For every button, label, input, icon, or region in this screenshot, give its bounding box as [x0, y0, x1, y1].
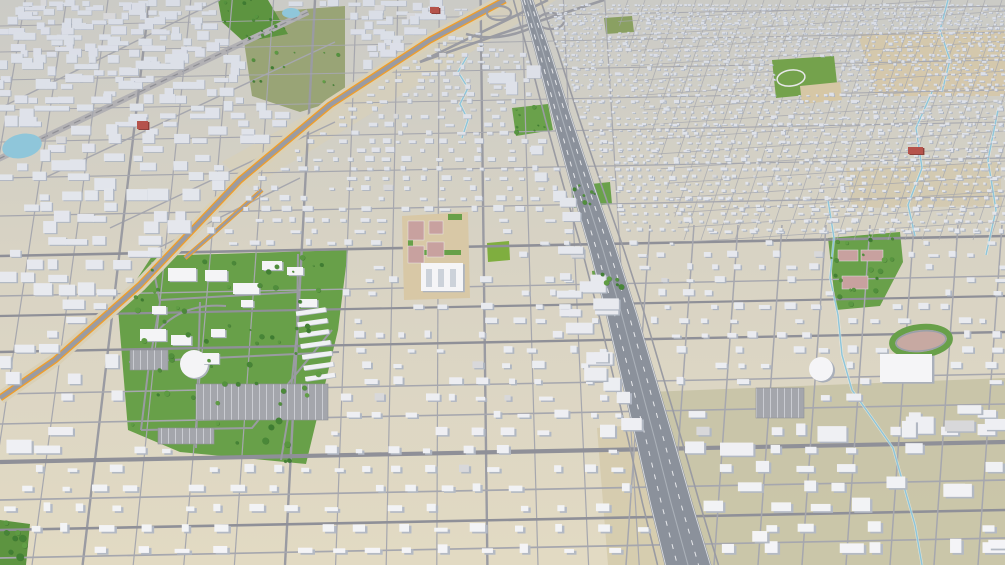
tree	[336, 53, 340, 57]
tree	[578, 184, 580, 186]
tree	[259, 334, 264, 339]
tree	[284, 460, 287, 463]
tree	[210, 365, 213, 368]
parking-lot	[130, 350, 168, 370]
tree	[281, 388, 286, 393]
tree	[235, 441, 238, 444]
tree	[252, 19, 255, 22]
tree	[837, 294, 842, 299]
sports-court	[427, 242, 444, 257]
tree	[292, 271, 294, 273]
tree	[852, 288, 856, 292]
tree	[262, 438, 269, 445]
tree	[834, 274, 838, 278]
tree	[515, 109, 517, 111]
sports-court	[408, 246, 424, 263]
tree	[158, 368, 162, 372]
tree	[849, 289, 852, 292]
tree	[268, 424, 274, 430]
tree	[604, 280, 609, 285]
tree	[616, 283, 619, 286]
tree	[516, 126, 518, 128]
tree	[169, 353, 174, 358]
tree	[882, 257, 887, 262]
tree	[322, 80, 325, 83]
tree	[182, 308, 187, 313]
school-campus-center	[402, 212, 470, 300]
city-aerial-3d-map[interactable]	[0, 0, 1005, 565]
tree	[868, 267, 873, 272]
tree	[255, 15, 258, 18]
tree	[273, 285, 278, 290]
tree	[224, 1, 227, 4]
tree	[257, 283, 262, 288]
tree	[224, 20, 226, 22]
tree	[216, 421, 220, 425]
green-top-center	[604, 16, 634, 34]
tree	[4, 530, 9, 535]
tree	[284, 441, 290, 447]
tree	[259, 80, 261, 82]
tree	[278, 340, 281, 343]
tree	[543, 126, 545, 128]
tree	[533, 129, 535, 131]
tree	[202, 259, 207, 264]
tree	[305, 393, 309, 397]
tree	[275, 264, 280, 269]
tree	[891, 237, 894, 240]
tree	[19, 535, 26, 542]
tree	[878, 269, 883, 274]
tree	[312, 265, 314, 267]
tree	[134, 295, 138, 299]
tree	[157, 393, 160, 396]
tree	[204, 339, 208, 343]
dome-arena	[809, 357, 833, 381]
tree	[246, 35, 248, 37]
tree	[236, 382, 241, 387]
tree	[269, 18, 272, 21]
sports-court	[408, 221, 424, 240]
tree	[252, 80, 254, 82]
tree	[215, 401, 219, 405]
tree	[163, 320, 167, 324]
tree	[207, 359, 210, 362]
tree	[186, 332, 191, 337]
tree	[588, 203, 590, 205]
tree	[232, 261, 236, 265]
tree	[836, 240, 840, 244]
pond	[282, 8, 300, 18]
ball-field	[842, 276, 868, 289]
tree	[873, 288, 878, 293]
tree	[830, 257, 832, 259]
tree	[320, 263, 324, 267]
tree	[227, 10, 228, 11]
tree	[518, 114, 520, 116]
parking-lot	[158, 428, 214, 444]
tree	[22, 543, 28, 549]
tree	[252, 58, 255, 61]
tree	[278, 402, 281, 405]
tree	[537, 124, 539, 126]
tree	[573, 187, 577, 191]
tree	[156, 288, 159, 291]
tree	[875, 277, 878, 280]
tree	[275, 51, 279, 55]
tree	[16, 553, 24, 561]
tree	[283, 66, 285, 68]
tree	[270, 335, 274, 339]
tree	[300, 255, 305, 260]
tree	[315, 371, 321, 377]
tree	[619, 284, 625, 290]
tree	[15, 530, 20, 535]
tree	[8, 550, 13, 555]
tree	[247, 362, 253, 368]
tree	[514, 130, 518, 134]
tree	[294, 352, 297, 355]
tree	[261, 30, 263, 32]
tree	[271, 66, 274, 69]
tree	[834, 258, 839, 263]
tree	[255, 341, 258, 344]
tree	[305, 324, 310, 329]
tree	[222, 381, 227, 386]
tree	[141, 298, 144, 301]
tree	[862, 254, 864, 256]
ball-field	[838, 250, 858, 261]
tree	[227, 285, 231, 289]
tree	[261, 34, 264, 37]
tree	[306, 329, 310, 333]
tree	[276, 418, 282, 424]
tree	[153, 291, 155, 293]
tree	[839, 278, 843, 282]
tree	[582, 194, 585, 197]
square-park-center	[487, 241, 510, 262]
tree	[848, 301, 853, 306]
tree	[12, 536, 17, 541]
tree	[890, 257, 894, 261]
tree	[316, 288, 321, 293]
tree	[294, 52, 295, 53]
tree	[333, 84, 335, 86]
school-campus-ne	[772, 56, 842, 104]
tree	[868, 238, 872, 242]
tree	[135, 307, 141, 313]
tree	[274, 25, 277, 28]
tree	[590, 190, 593, 193]
tree	[323, 52, 324, 53]
tree	[242, 1, 245, 4]
tree	[271, 31, 272, 32]
tree	[869, 234, 871, 236]
tree	[532, 105, 536, 109]
parking-lot	[756, 388, 804, 418]
tree	[191, 395, 195, 399]
tree	[593, 193, 595, 195]
tree	[582, 200, 586, 204]
tree	[845, 241, 849, 245]
tree	[164, 391, 170, 397]
sports-court	[429, 221, 443, 234]
tree	[295, 327, 298, 330]
tree	[615, 278, 618, 281]
tree	[255, 382, 258, 385]
tree	[4, 520, 9, 525]
tree	[176, 306, 180, 310]
tree	[248, 37, 251, 40]
tree	[283, 27, 285, 29]
tree	[266, 269, 271, 274]
tree	[141, 338, 147, 344]
tree	[249, 329, 251, 331]
tree	[601, 273, 605, 277]
tree	[298, 300, 302, 304]
tree	[302, 386, 307, 391]
viewport	[0, 0, 1005, 565]
tree	[287, 458, 291, 462]
tree	[151, 269, 154, 272]
tree	[131, 423, 134, 426]
tree	[228, 324, 231, 327]
